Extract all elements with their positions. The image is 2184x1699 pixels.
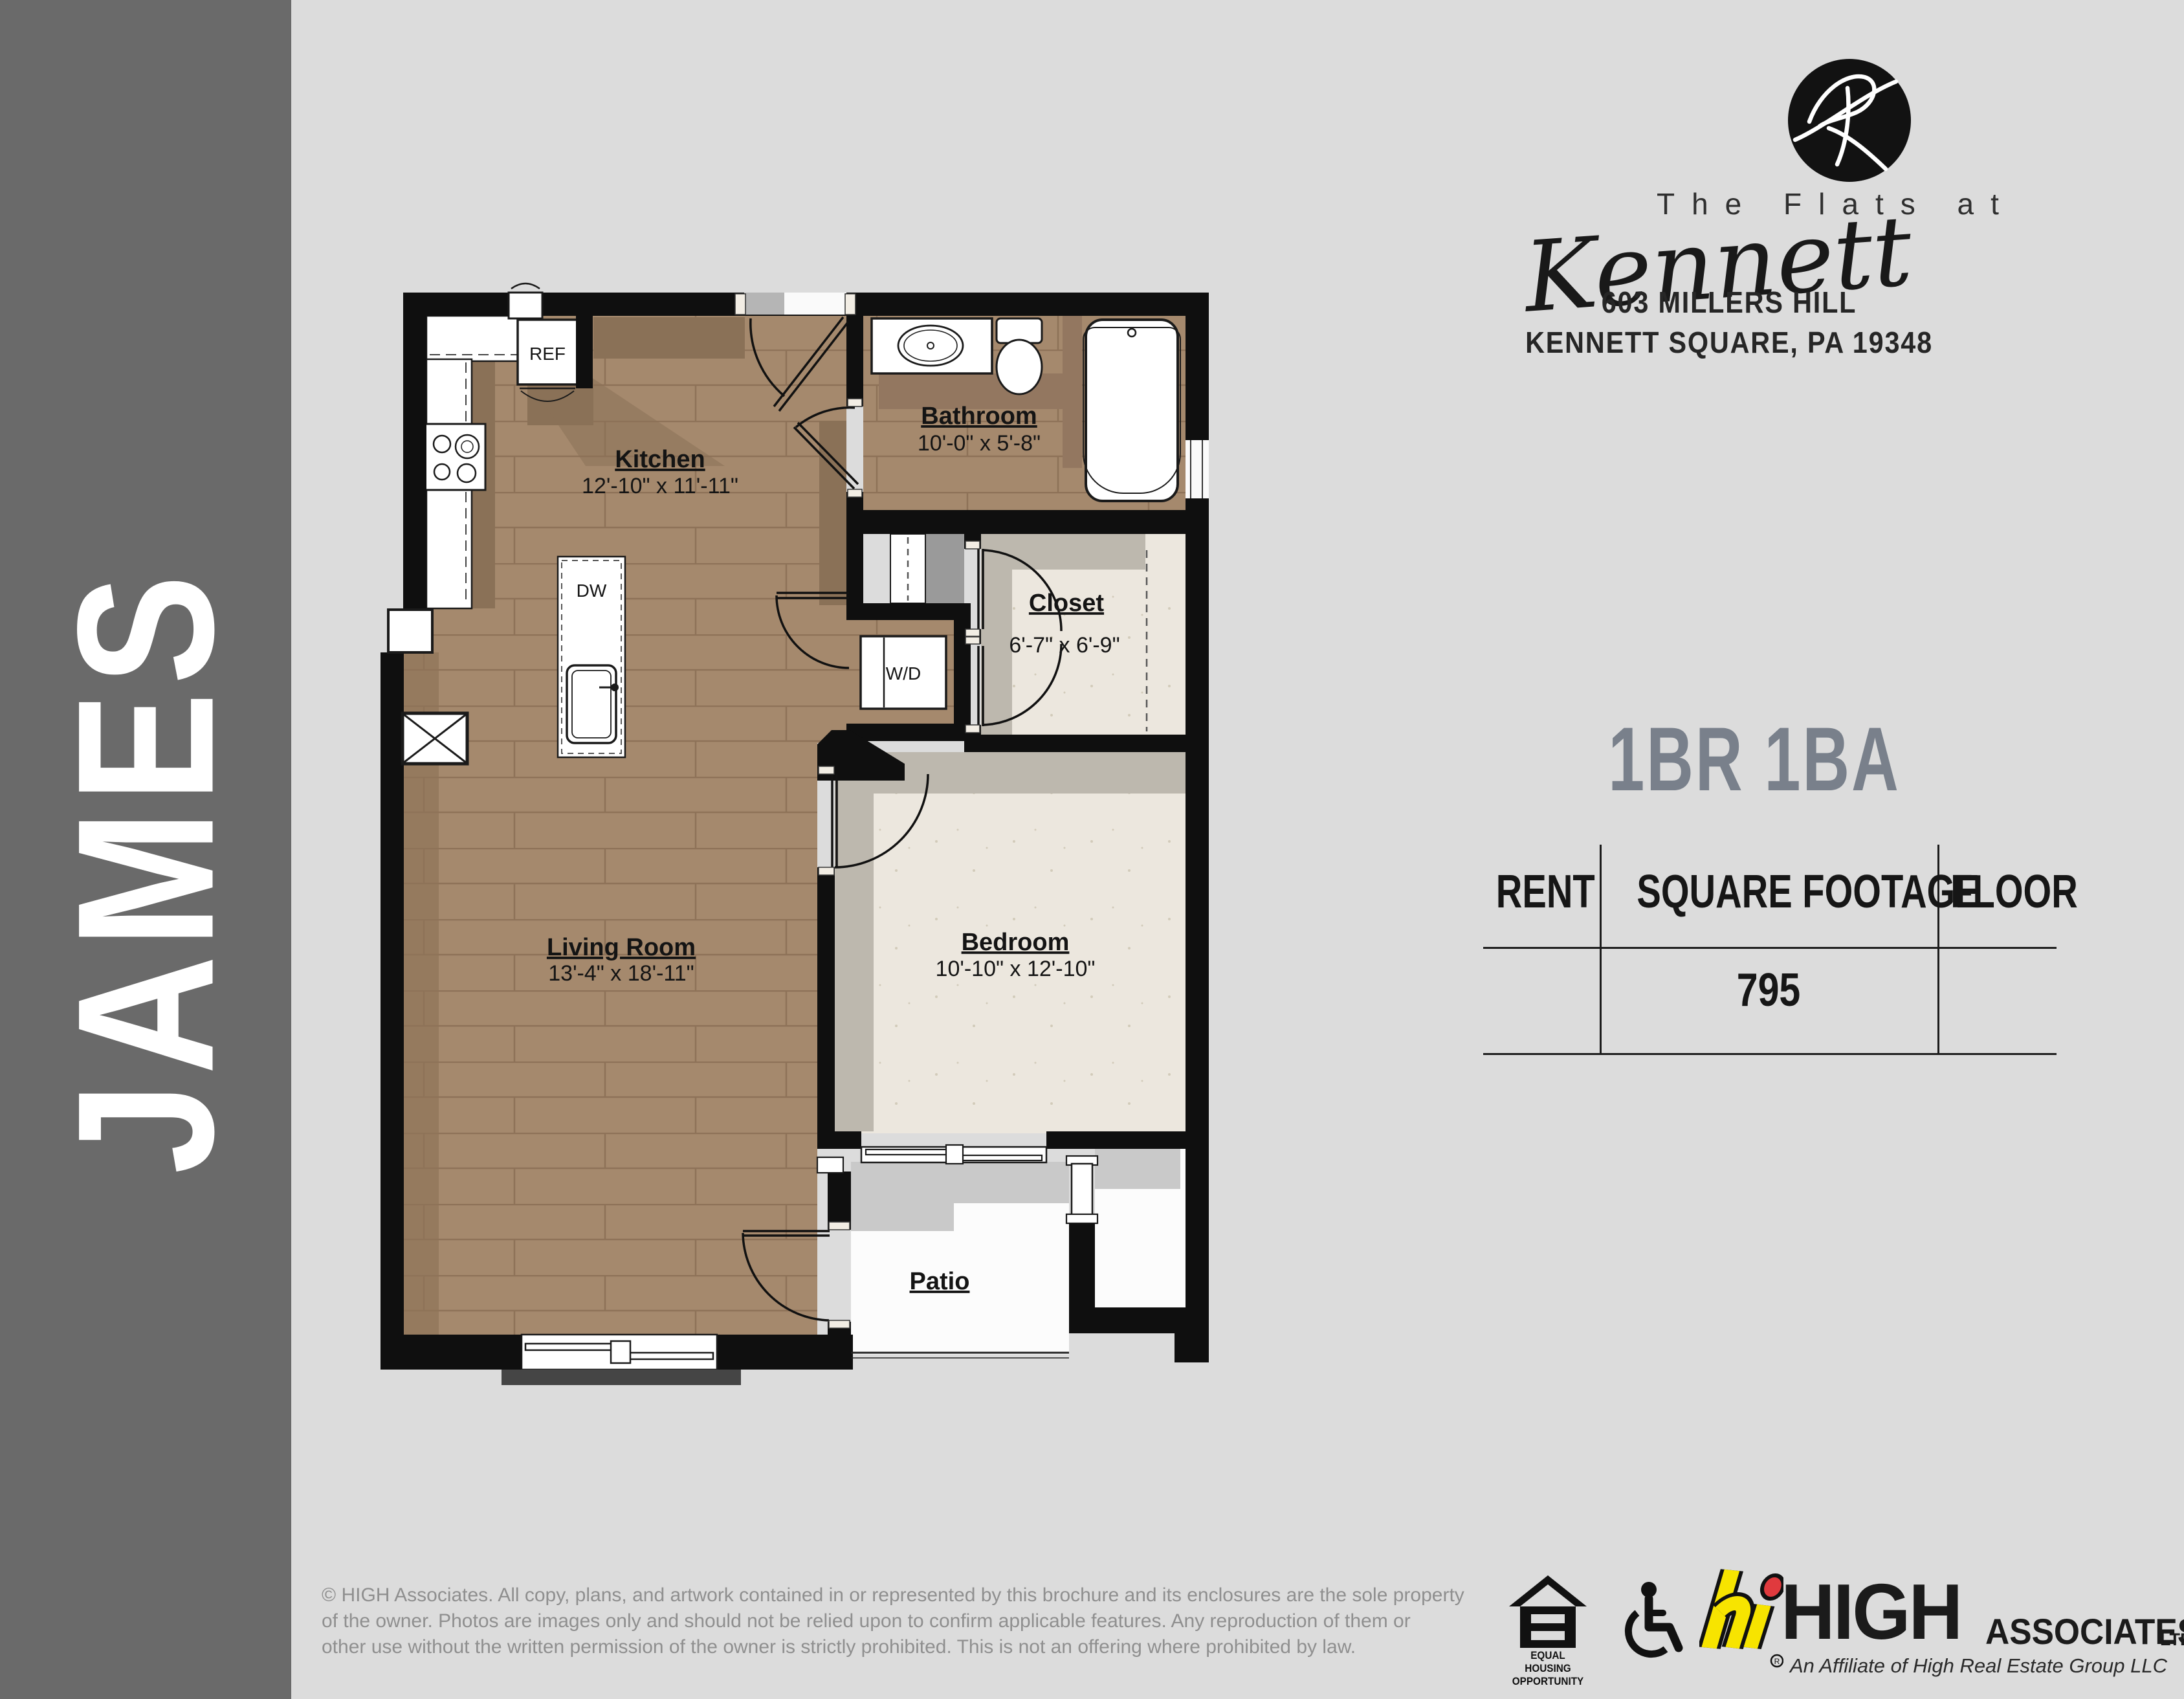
brochure-page: { "sidebar": { "label": "JAMES", "bg": "… <box>0 0 2184 1699</box>
high-logo-associates: ASSOCIATES <box>1985 1610 2184 1652</box>
eho-line-1: EQUAL HOUSING <box>1507 1649 1589 1675</box>
floor-plan: Kitchen 12'-10" x 11'-11" Bathroom 10'-0… <box>379 278 1217 1392</box>
equal-housing-text: EQUAL HOUSING OPPORTUNITY <box>1507 1649 1589 1688</box>
unit-type-heading: 1BR 1BA <box>1568 707 1941 812</box>
stove <box>424 424 485 490</box>
kennett-monogram-icon <box>1785 56 1914 185</box>
wheelchair-accessible-icon <box>1623 1579 1688 1670</box>
ref-label: REF <box>529 344 566 364</box>
table-value-rent <box>1494 961 1589 1019</box>
high-logo-name: HIGH <box>1781 1566 1961 1657</box>
table-header-rule <box>1483 947 2057 949</box>
toilet-bowl <box>997 340 1042 394</box>
bathroom-dims: 10'-0" x 5'-8" <box>918 431 1041 456</box>
copyright-line-2: of the owner. Photos are images only and… <box>322 1608 1525 1634</box>
sink-faucet <box>611 683 619 691</box>
high-logo-ltd: LTD. <box>2160 1630 2184 1650</box>
equal-housing-icon <box>1508 1574 1588 1649</box>
patio-post <box>1072 1164 1092 1216</box>
svg-text:R: R <box>1774 1657 1780 1666</box>
copyright-line-1: © HIGH Associates. All copy, plans, and … <box>322 1582 1525 1608</box>
copyright-line-3: other use without the written permission… <box>322 1634 1525 1660</box>
kitchen-label: Kitchen <box>615 446 705 473</box>
table-value-square-footage: 795 <box>1630 961 1907 1019</box>
bedroom-label: Bedroom <box>962 929 1070 956</box>
table-header-square-footage: SQUARE FOOTAGE <box>1637 863 1900 921</box>
vanity-sink <box>898 326 963 366</box>
closet-label: Closet <box>1029 590 1104 617</box>
address-line-1: 603 MILLERS HILL <box>1496 285 1962 320</box>
high-logo-tagline: An Affiliate of High Real Estate Group L… <box>1790 1654 2167 1678</box>
kitchen-sink <box>567 665 616 743</box>
bedroom-dims: 10'-10" x 12'-10" <box>936 957 1096 981</box>
table-divider-1 <box>1600 845 1602 1055</box>
address-line-2: KENNETT SQUARE, PA 19348 <box>1496 325 1962 360</box>
living-room-label: Living Room <box>547 934 696 961</box>
window-sill <box>502 1370 741 1385</box>
pantry-nook <box>890 534 925 603</box>
living-room-dims: 13'-4" x 18'-11" <box>548 961 694 986</box>
bedroom-door-leaf <box>832 774 837 867</box>
patio-left-jamb <box>817 1157 843 1173</box>
wd-label: W/D <box>886 663 921 683</box>
range-hood <box>509 293 542 318</box>
bathroom-window <box>1186 440 1209 498</box>
closet-door-leaf-2 <box>978 646 983 726</box>
patio-label: Patio <box>910 1268 970 1295</box>
closet-dims: 6'-7" x 6'-9" <box>1009 633 1120 658</box>
floorplan-name-vertical: JAMES <box>49 148 243 1592</box>
table-value-floor <box>1948 961 2046 1019</box>
dw-label: DW <box>577 581 607 601</box>
bathroom-label: Bathroom <box>921 403 1037 430</box>
kitchen-dims: 12'-10" x 11'-11" <box>582 474 738 498</box>
eho-line-2: OPPORTUNITY <box>1507 1675 1589 1688</box>
table-header-rent: RENT <box>1496 863 1587 921</box>
high-hi-mark-icon: R <box>1699 1565 1783 1669</box>
table-header-floor: FLOOR <box>1950 863 2044 921</box>
table-bottom-rule <box>1483 1053 2057 1055</box>
wall-niche <box>388 610 432 652</box>
copyright-text: © HIGH Associates. All copy, plans, and … <box>322 1582 1525 1660</box>
spec-table: RENT SQUARE FOOTAGE FLOOR 795 <box>1483 845 2057 1055</box>
bathtub <box>1086 320 1178 501</box>
hood-vent-arc <box>511 283 540 289</box>
closet-door-leaf-1 <box>978 549 983 629</box>
